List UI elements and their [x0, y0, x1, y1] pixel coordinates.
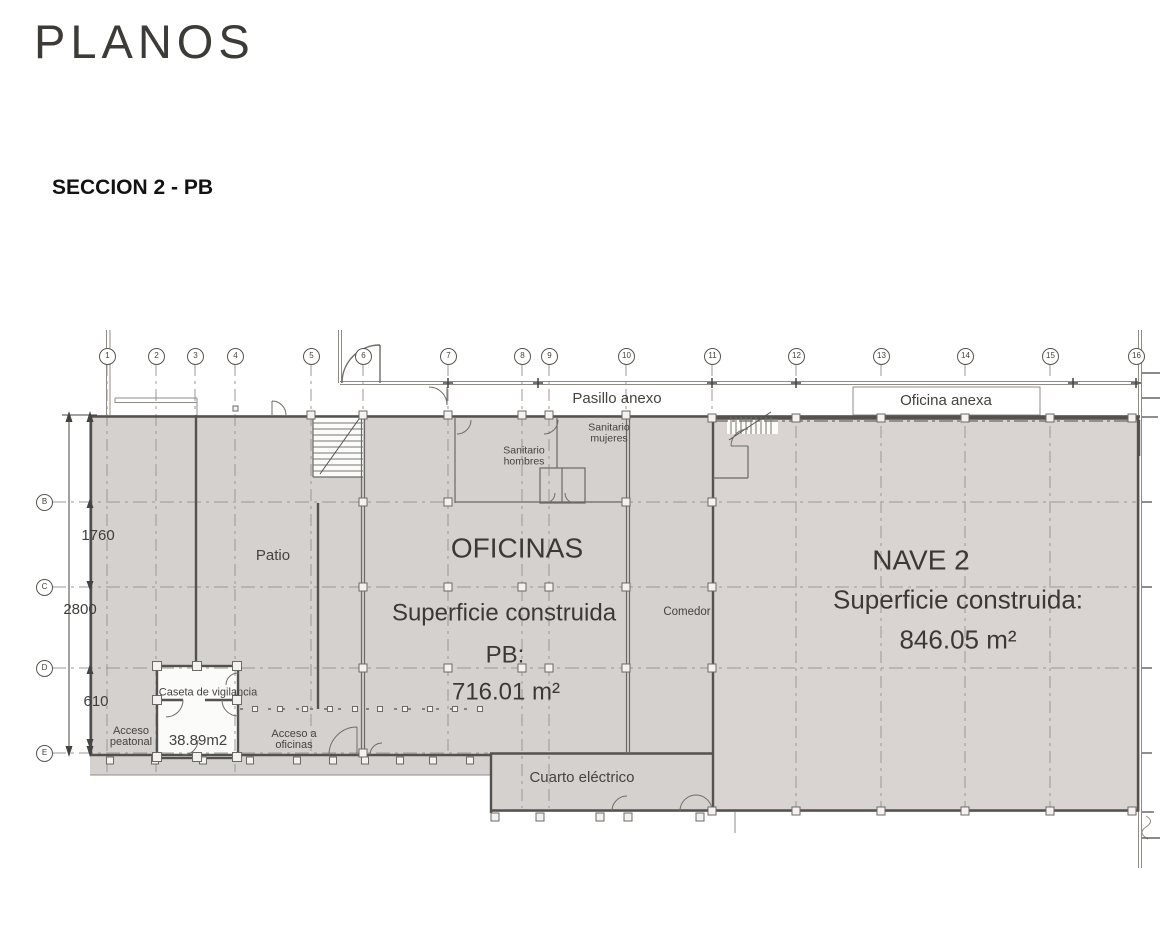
label-nave2-area: 846.05 m²: [899, 626, 1016, 653]
label-acceso-peatonal: Acceso peatonal: [110, 726, 152, 748]
floor-plan-drawing: [0, 0, 1169, 926]
label-cuarto-electrico: Cuarto eléctrico: [529, 770, 634, 786]
grid-column-bubble-12: 12: [788, 348, 805, 365]
dimension-lower: 610: [83, 694, 108, 710]
grid-column-bubble-4: 4: [227, 348, 244, 365]
grid-column-bubble-6: 6: [355, 348, 372, 365]
label-nave2-superficie: Superficie construida:: [833, 586, 1083, 613]
grid-column-bubble-15: 15: [1042, 348, 1059, 365]
grid-column-bubble-14: 14: [957, 348, 974, 365]
label-patio: Patio: [256, 548, 290, 564]
label-oficinas-title: OFICINAS: [451, 533, 583, 562]
grid-column-bubble-16: 16: [1128, 348, 1145, 365]
grid-column-bubble-11: 11: [704, 348, 721, 365]
grid-row-bubble-d: D: [36, 660, 53, 677]
grid-column-bubble-8: 8: [514, 348, 531, 365]
grid-row-bubble-c: C: [36, 579, 53, 596]
label-oficinas-area: 716.01 m²: [452, 679, 560, 704]
label-oficina-anexa: Oficina anexa: [900, 393, 992, 409]
grid-column-bubble-13: 13: [873, 348, 890, 365]
grid-column-bubble-5: 5: [303, 348, 320, 365]
section-heading: SECCION 2 - PB: [52, 176, 213, 200]
label-oficinas-pb: PB:: [486, 642, 525, 667]
grid-column-bubble-10: 10: [618, 348, 635, 365]
grid-row-bubble-e: E: [36, 745, 53, 762]
label-nave2-title: NAVE 2: [872, 545, 970, 574]
dimension-total: 2800: [63, 602, 96, 618]
grid-column-bubble-1: 1: [99, 348, 116, 365]
grid-column-bubble-9: 9: [541, 348, 558, 365]
label-oficinas-superficie: Superficie construida: [392, 600, 616, 625]
grid-column-bubble-2: 2: [148, 348, 165, 365]
label-sanitario-mujeres: Sanitario mujeres: [588, 423, 629, 444]
label-pasillo-anexo: Pasillo anexo: [572, 391, 661, 407]
page-title: PLANOS: [34, 14, 255, 69]
grid-column-bubble-7: 7: [440, 348, 457, 365]
label-comedor: Comedor: [663, 606, 710, 618]
grid-row-bubble-b: B: [36, 494, 53, 511]
floor-plan-page: PLANOS SECCION 2 - PB 1 2 3 4 5 6 7 8 9 …: [0, 0, 1169, 926]
dimension-upper: 1760: [81, 528, 114, 544]
label-caseta-area: 38.89m2: [169, 733, 227, 749]
label-sanitario-hombres: Sanitario hombres: [503, 446, 544, 467]
label-acceso-oficinas: Acceso a oficinas: [271, 729, 316, 751]
label-caseta-vigilancia: Caseta de vigilancia: [159, 688, 257, 699]
grid-column-bubble-3: 3: [187, 348, 204, 365]
